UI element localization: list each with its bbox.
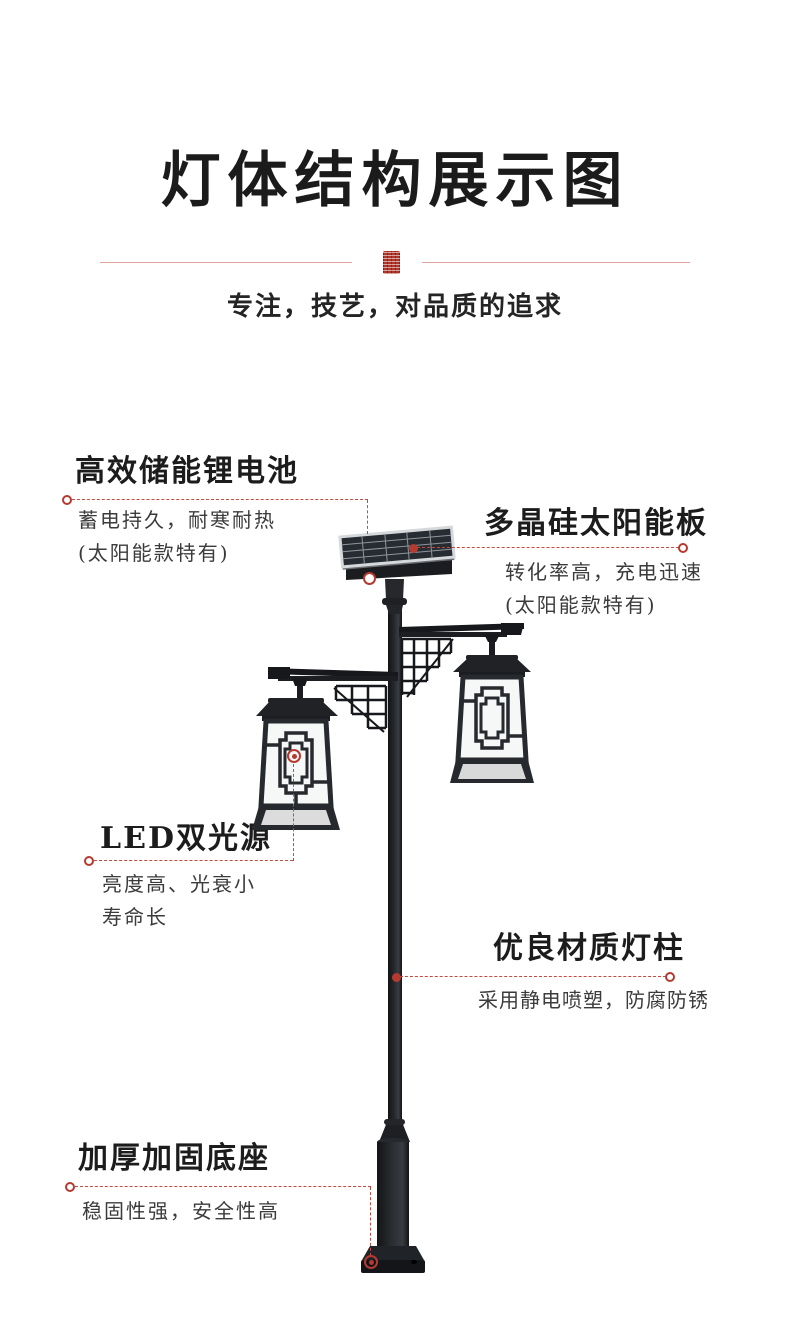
lamp-illustration [0,520,790,1324]
callout-base-anchor-target [364,1255,378,1269]
callout-base-vline [370,1187,371,1256]
callout-solar-anchor-dot [409,544,418,553]
callout-led-hline [94,860,293,861]
callout-battery-hline [72,499,368,500]
divider-left-line [100,262,352,263]
callout-battery-title: 高效储能锂电池 [75,446,299,490]
callout-battery-end-ring [363,572,376,585]
callout-solar-hline [417,547,679,548]
callout-battery-vline [367,500,368,534]
solar-panel-graphic [340,527,454,580]
callout-solar-end-ring [678,543,688,553]
callout-pole-hline [400,976,666,977]
callout-led-vline [293,764,294,861]
callout-base-hline [75,1186,371,1187]
callout-pole-end-ring [665,972,675,982]
callout-led-anchor-target [287,749,301,763]
left-lantern-graphic [252,698,340,830]
subtitle: 专注，技艺，对品质的追求 [0,286,790,323]
red-seal-stamp-icon [383,251,400,274]
callout-battery-start-ring [62,495,72,505]
callout-led-start-ring [84,856,94,866]
callout-base-start-ring [65,1182,75,1192]
right-lantern-graphic [450,655,534,783]
page-title: 灯体结构展示图 [0,148,790,214]
callout-pole-anchor-dot [392,973,401,982]
product-structure-infographic: 灯体结构展示图 专注，技艺，对品质的追求 高效储能锂电池 蓄电持久，耐寒耐热 (… [0,0,790,1324]
divider-right-line [422,262,690,263]
